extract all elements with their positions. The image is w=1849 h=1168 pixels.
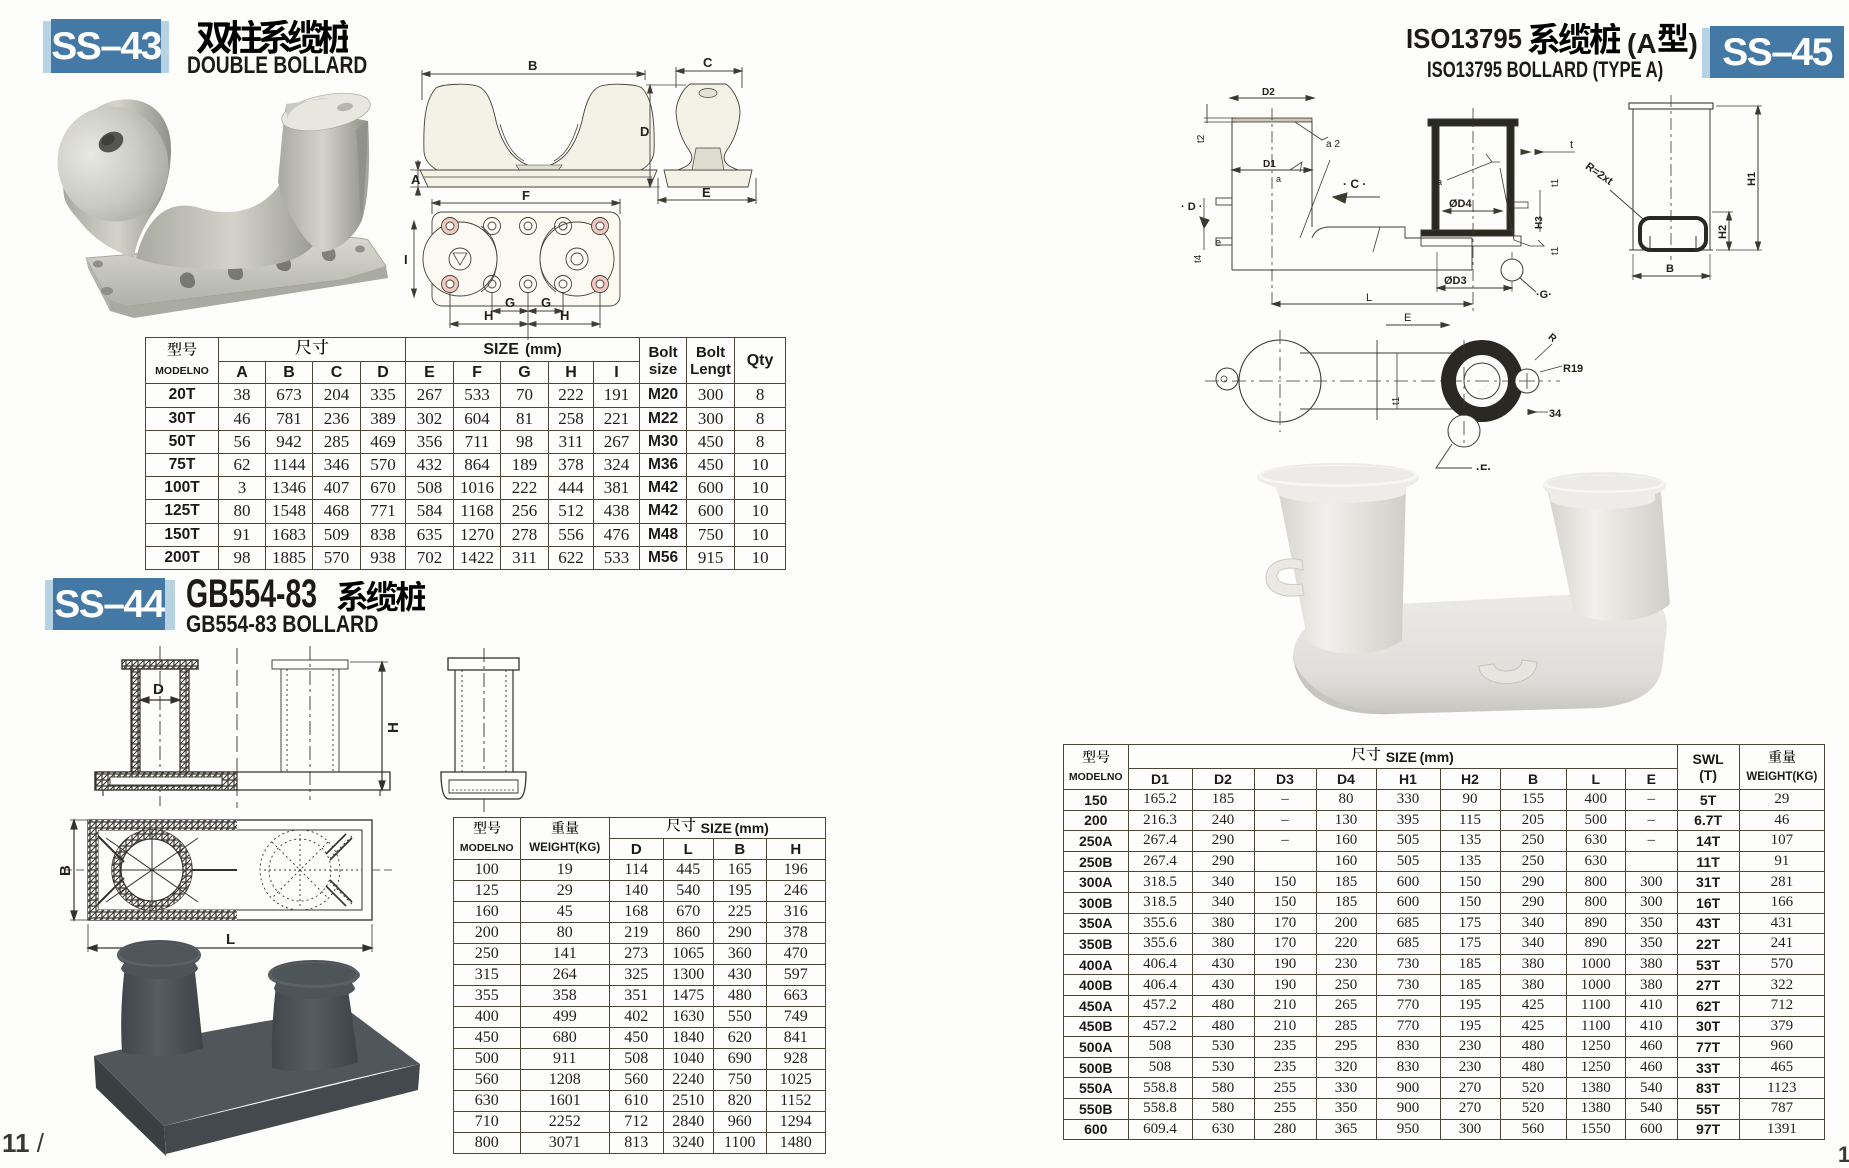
svg-text:F: F (522, 188, 530, 203)
svg-text:·G·: ·G· (1536, 289, 1552, 301)
svg-text:B: B (1666, 263, 1674, 275)
svg-text:H3: H3 (1534, 216, 1545, 229)
svg-text:a: a (1437, 177, 1442, 187)
svg-text:R: R (1546, 332, 1559, 346)
svg-text:t1: t1 (1391, 396, 1402, 405)
svg-text:t2: t2 (1196, 134, 1207, 143)
svg-text:B: B (528, 58, 537, 73)
svg-text:C: C (703, 55, 713, 70)
svg-text:e: e (1215, 237, 1221, 249)
svg-text:t1: t1 (1550, 178, 1561, 187)
svg-text:t1: t1 (1550, 246, 1561, 255)
svg-text:· C ·: · C · (1343, 177, 1366, 191)
svg-text:t4: t4 (1193, 254, 1204, 263)
svg-text:34: 34 (1549, 408, 1562, 420)
svg-text:ØD4: ØD4 (1449, 198, 1473, 210)
svg-text:a 2: a 2 (1326, 139, 1340, 150)
svg-text:I: I (404, 252, 408, 267)
svg-text:H: H (385, 722, 402, 733)
svg-text:B: B (60, 865, 74, 876)
svg-text:t: t (1570, 139, 1573, 151)
svg-text:H: H (560, 308, 569, 323)
svg-text:G: G (505, 295, 515, 310)
svg-text:A: A (411, 172, 421, 187)
svg-text:D2: D2 (1262, 87, 1275, 98)
svg-text:D1: D1 (1263, 159, 1276, 170)
svg-text:G: G (541, 295, 551, 310)
svg-text:L: L (1366, 292, 1372, 304)
svg-text:ØD3: ØD3 (1444, 275, 1467, 287)
svg-text:H1: H1 (1746, 172, 1758, 186)
svg-text:R19: R19 (1563, 363, 1583, 375)
svg-text:· D ·: · D · (1181, 201, 1202, 213)
svg-text:a: a (1276, 174, 1281, 184)
svg-text:D: D (153, 681, 164, 698)
svg-text:H: H (484, 308, 493, 323)
svg-text:ØD3: ØD3 (1475, 378, 1498, 400)
svg-text:E: E (702, 185, 711, 200)
svg-text:R=2xt: R=2xt (1583, 160, 1615, 187)
svg-text:H2: H2 (1717, 225, 1729, 239)
svg-text:D: D (640, 124, 649, 139)
svg-text:E: E (1404, 312, 1411, 324)
